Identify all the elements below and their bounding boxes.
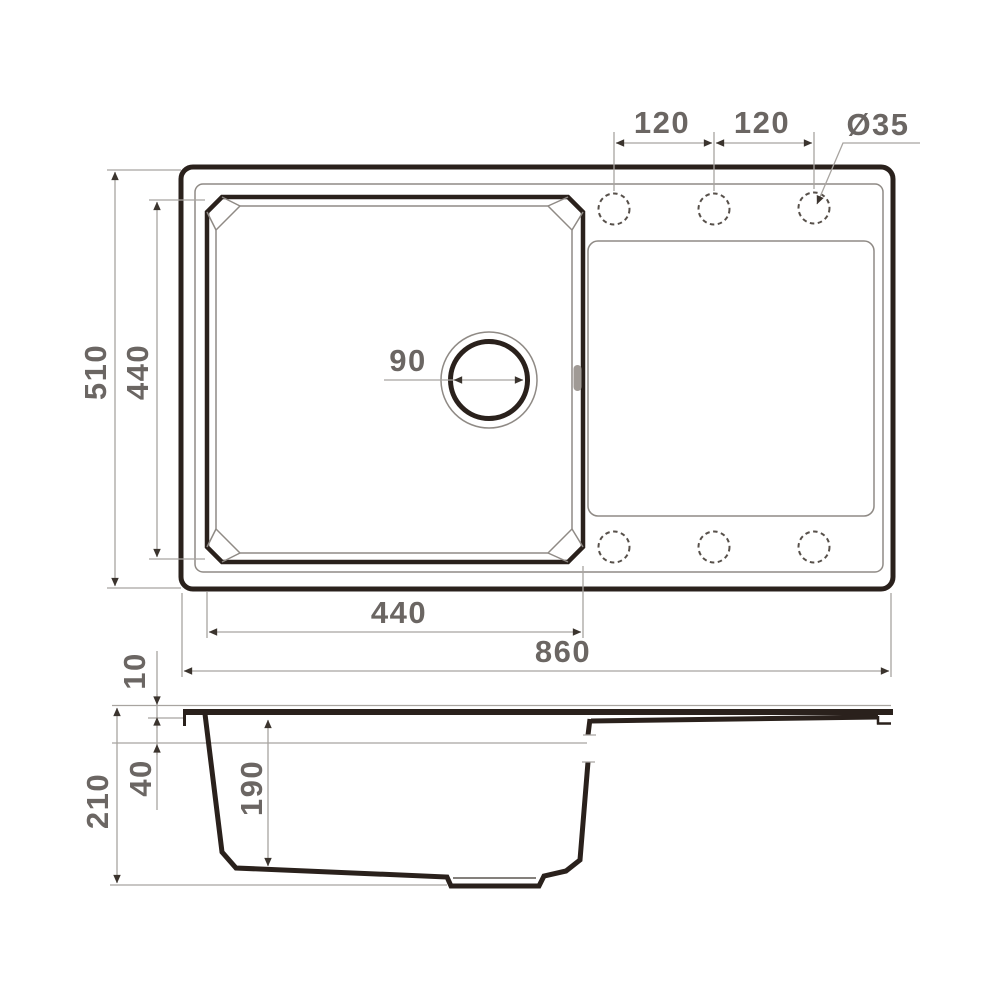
dim-overall-depth: 510 <box>78 344 113 400</box>
dim-hole-diameter: Ø35 <box>846 107 909 142</box>
overflow-cut-marks <box>582 735 596 762</box>
drainboard-outline <box>588 241 874 516</box>
dim-overall-width: 860 <box>535 634 591 669</box>
side-view: 10 40 210 190 <box>80 651 893 886</box>
dim-edge-height: 40 <box>123 759 158 796</box>
dim-drain-diameter: 90 <box>389 343 426 378</box>
top-view: 120 120 Ø35 510 440 90 440 860 <box>78 105 920 677</box>
total-height-dimension: 210 <box>80 708 117 883</box>
dim-rim-height: 10 <box>117 652 152 689</box>
dim-hole-spacing-right: 120 <box>734 105 790 140</box>
dim-hole-spacing-left: 120 <box>634 105 690 140</box>
faucet-hole-top-1 <box>599 194 630 225</box>
drainboard-section-line <box>591 717 878 721</box>
overflow-notch <box>574 365 582 391</box>
dim-total-height: 210 <box>80 773 115 829</box>
faucet-hole-bottom-1 <box>599 532 630 563</box>
faucet-hole-bottom-2 <box>699 532 730 563</box>
edge-thickness-dimensions: 10 40 <box>117 651 158 810</box>
bottom-dimensions: 440 860 <box>182 566 891 677</box>
faucet-hole-top-2 <box>699 194 730 225</box>
right-edge-lip <box>877 716 891 725</box>
faucet-hole-top-3 <box>799 193 830 224</box>
bowl-right-wall-upper <box>588 719 590 735</box>
drawing-canvas: 120 120 Ø35 510 440 90 440 860 <box>0 0 1000 1000</box>
dim-bowl-width: 440 <box>371 595 427 630</box>
dim-bowl-depth: 440 <box>120 344 155 400</box>
hole-spacing-dimensions: 120 120 Ø35 <box>614 105 920 204</box>
left-dimensions: 510 440 <box>78 170 205 588</box>
bowl-inner-depth-dimension: 190 <box>234 720 269 866</box>
faucet-holes <box>599 193 830 563</box>
sink-dimension-drawing: 120 120 Ø35 510 440 90 440 860 <box>0 0 1000 1000</box>
dim-bowl-inner-depth: 190 <box>234 760 269 816</box>
sink-rim-inner-line <box>195 184 883 572</box>
faucet-hole-bottom-3 <box>799 532 830 563</box>
